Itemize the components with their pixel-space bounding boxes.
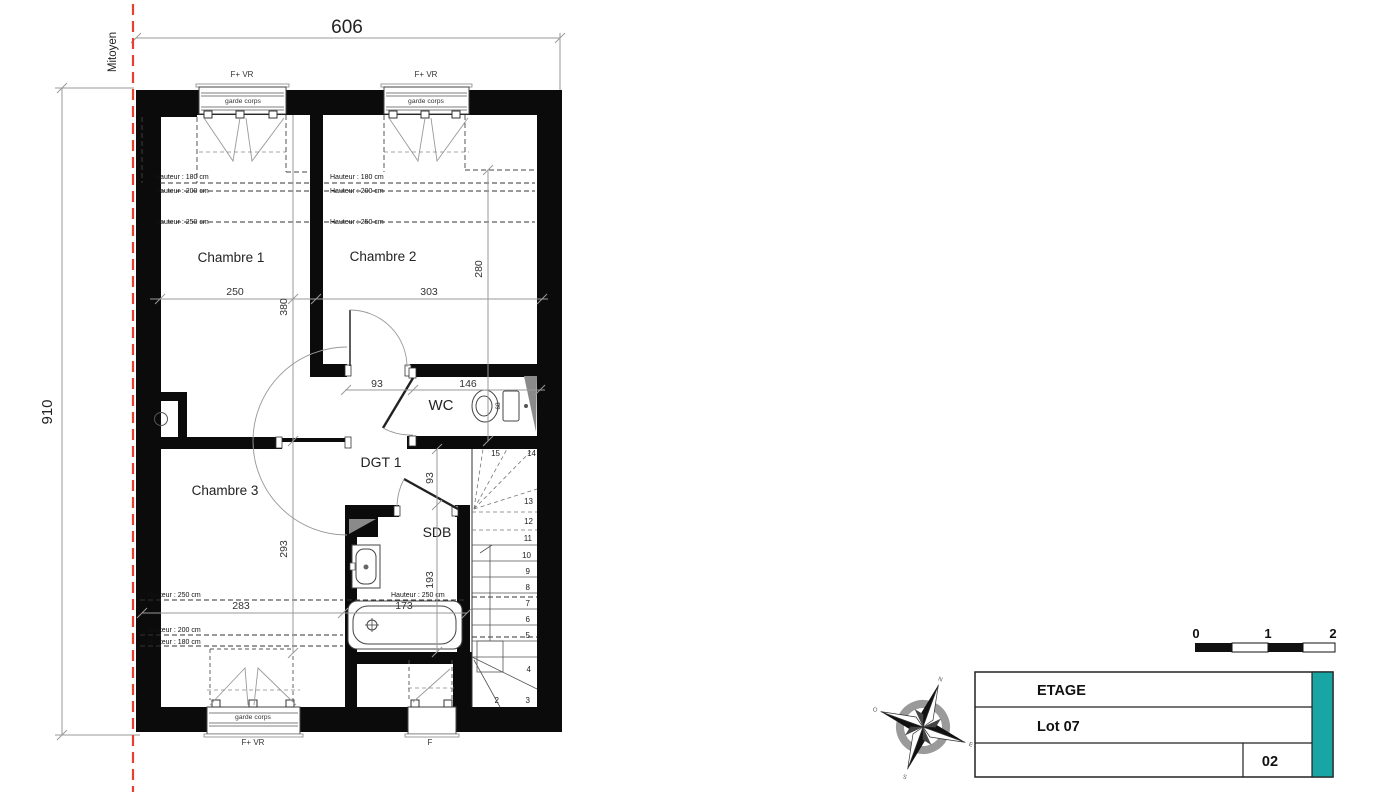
dim-sdb-height: 193 [424,571,436,589]
dim-wc-door: 93 [371,378,383,390]
stair-step-label: 15 [491,449,500,458]
dim-ch2-width: 303 [420,286,438,298]
hauteur-label: Hauteur : 200 cm [330,188,384,195]
roof-slope-dashes [142,115,537,183]
dim-wc-width: 146 [459,378,477,390]
compass-letter-e: E [968,742,974,749]
dim-dgt-width: 93 [424,472,436,484]
scale-label-2: 2 [1329,626,1336,641]
room-label-chambre2: Chambre 2 [350,249,417,264]
hauteur-label: Hauteur : 200 cm [147,627,201,634]
room-label-chambre1: Chambre 1 [198,250,265,265]
door-chambre2 [345,310,411,376]
dim-ch1-width: 250 [226,286,244,298]
stair-step-label: 4 [527,665,532,674]
stair-step-label: 12 [524,517,533,526]
floor-plan-drawing: 606 910 Mitoyen [0,0,1387,800]
stair-step-label: 9 [526,567,531,576]
dim-ch1-height: 380 [278,298,290,316]
compass-letter-s: S [902,774,908,781]
door-wc [383,368,416,446]
stair-step-label: 13 [524,497,533,506]
hauteur-label: Hauteur : 180 cm [330,174,384,181]
f-vr-label-1: F+ VR [231,70,254,79]
dim-ch3-width: 283 [232,600,250,612]
hauteur-label: Hauteur : 250 cm [155,219,209,226]
dim-bath-width: 173 [395,600,413,612]
f-window-label: F [428,738,433,747]
dim-total-height-label: 910 [39,399,56,424]
sink-icon [350,545,380,588]
dim-ch3-height: 293 [278,540,290,558]
room-label-dgt: DGT 1 [361,454,402,470]
garde-corps-label-3: garde corps [235,714,271,721]
hauteur-label: Hauteur : 250 cm [330,219,384,226]
wc-shaft-hatch [524,376,537,432]
room-label-chambre3: Chambre 3 [192,483,259,498]
wc-depth-label: 68 [495,402,502,410]
scale-label-0: 0 [1192,626,1199,641]
title-block-stage: ETAGE [1037,683,1086,699]
dim-ch2-height: 280 [473,260,485,278]
stair-step-label: 10 [522,551,531,560]
garde-corps-label-1: garde corps [225,98,261,105]
compass-letter-o: O [872,707,879,714]
stair-step-label: 14 [527,449,536,458]
hauteur-label: Hauteur : 180 cm [155,174,209,181]
hauteur-label: Hauteur : 180 cm [147,639,201,646]
title-block: ETAGE Lot 07 02 [975,672,1333,777]
stair-step-label: 7 [526,599,531,608]
stair-step-label: 3 [526,696,531,705]
f-vr-label-3: F+ VR [242,738,265,747]
dim-total-width-label: 606 [331,17,363,38]
floor-plan-page: 606 910 Mitoyen [0,0,1387,800]
title-block-number: 02 [1262,754,1278,770]
window-chambre2 [381,84,472,161]
dimension-total-height [55,83,140,740]
hauteur-labels: Hauteur : 180 cm Hauteur : 200 cm Hauteu… [147,174,450,646]
title-block-lot: Lot 07 [1037,719,1080,735]
compass-letter-n: N [937,676,943,683]
stair-step-label: 11 [524,534,533,543]
room-label-wc: WC [429,397,454,414]
stair-step-label: 6 [526,615,531,624]
f-vr-label-2: F+ VR [415,70,438,79]
window-chambre3 [204,649,303,737]
scale-bar: 0 1 2 [1192,626,1336,652]
window-f [405,660,459,737]
mitoyen-label: Mitoyen [107,32,119,72]
compass-rose: N E S O [853,659,991,799]
stair-step-label: 5 [526,631,531,640]
hauteur-label: Hauteur : 250 cm [147,592,201,599]
dim-lines-interior [137,115,548,658]
window-chambre1 [196,84,289,161]
scale-label-1: 1 [1264,626,1271,641]
stair-step-label: 8 [526,583,531,592]
garde-corps-label-2: garde corps [408,98,444,105]
hauteur-label: Hauteur : 200 cm [155,188,209,195]
stair-step-label: 2 [495,696,500,705]
dimension-total-width [131,33,565,90]
